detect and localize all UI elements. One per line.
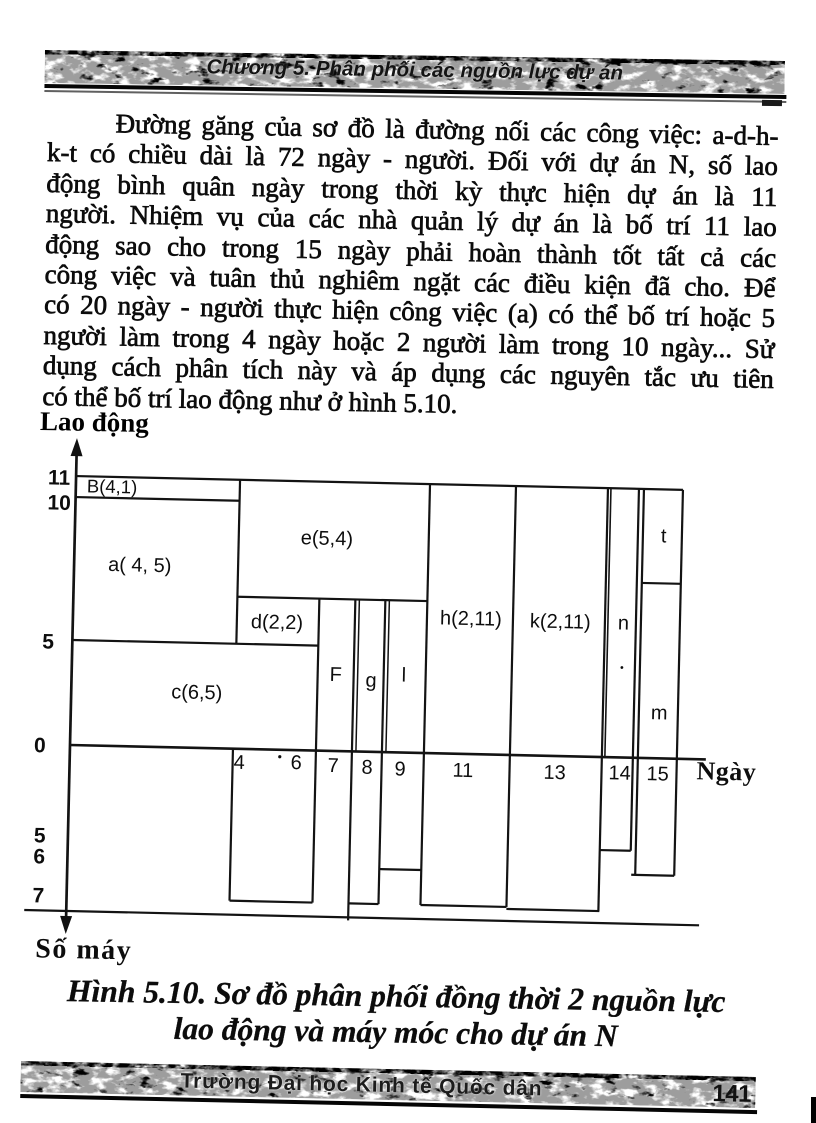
- svg-text:t: t: [661, 525, 667, 547]
- svg-text:l: l: [401, 665, 406, 687]
- svg-text:7: 7: [327, 755, 339, 777]
- svg-text:10: 10: [47, 491, 71, 515]
- svg-text:5: 5: [42, 630, 55, 653]
- svg-text:7: 7: [32, 884, 44, 907]
- svg-text:6: 6: [33, 845, 45, 868]
- svg-text:15: 15: [646, 763, 669, 785]
- svg-text:c(6,5): c(6,5): [171, 681, 223, 704]
- svg-text:k(2,11): k(2,11): [530, 610, 591, 633]
- svg-text:B(4,1): B(4,1): [87, 475, 138, 497]
- svg-text:13: 13: [543, 762, 566, 784]
- svg-text:11: 11: [48, 466, 71, 490]
- svg-text:4: 4: [233, 752, 245, 774]
- svg-text:F: F: [329, 664, 342, 686]
- svg-text:Ngày: Ngày: [696, 756, 756, 786]
- svg-text:9: 9: [394, 758, 406, 780]
- svg-text:11: 11: [452, 760, 473, 782]
- svg-text:0: 0: [34, 734, 46, 757]
- svg-text:m: m: [651, 702, 668, 724]
- svg-text:a( 4, 5): a( 4, 5): [108, 554, 172, 577]
- svg-text:Số máy: Số máy: [35, 933, 133, 966]
- svg-text:d(2,2): d(2,2): [251, 611, 304, 634]
- svg-text:g: g: [365, 670, 377, 692]
- svg-text:6: 6: [290, 752, 302, 774]
- svg-text:h(2,11): h(2,11): [440, 607, 502, 630]
- svg-text:n: n: [618, 612, 630, 634]
- svg-text:8: 8: [361, 757, 373, 779]
- svg-text:e(5,4): e(5,4): [301, 527, 354, 550]
- svg-text:14: 14: [608, 762, 631, 784]
- svg-text:5: 5: [34, 824, 47, 847]
